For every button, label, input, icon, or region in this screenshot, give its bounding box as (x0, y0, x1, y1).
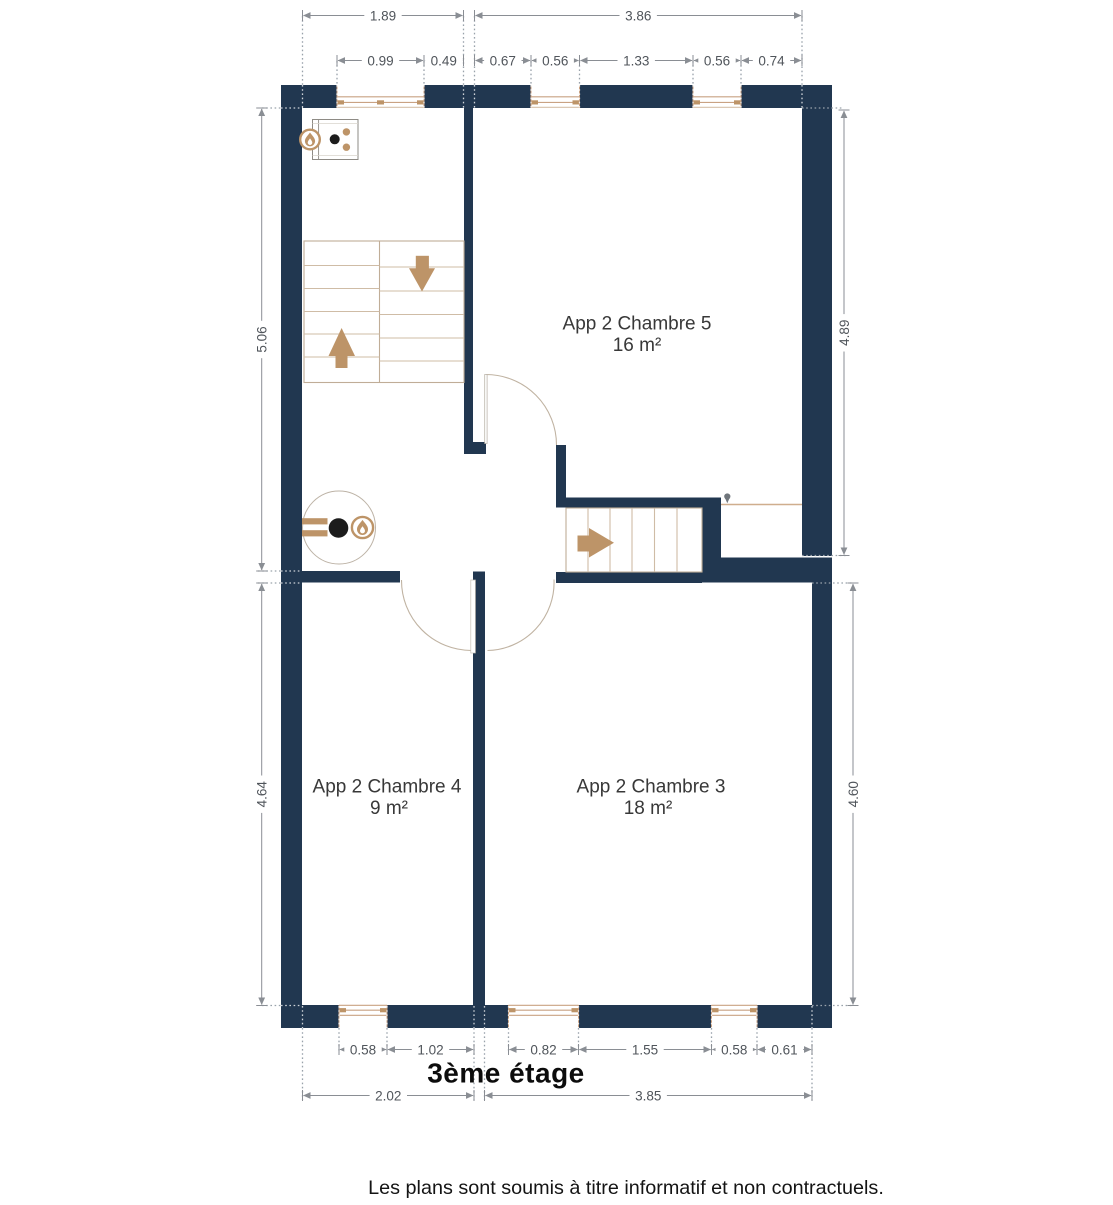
svg-text:3.85: 3.85 (635, 1088, 661, 1103)
svg-text:Les plans sont soumis à titre: Les plans sont soumis à titre informatif… (368, 1177, 884, 1199)
svg-text:0.58: 0.58 (721, 1042, 747, 1057)
svg-text:3.86: 3.86 (625, 8, 651, 23)
svg-text:0.61: 0.61 (771, 1042, 797, 1057)
svg-text:1.02: 1.02 (417, 1042, 443, 1057)
svg-text:0.56: 0.56 (704, 53, 730, 68)
svg-text:1.33: 1.33 (623, 53, 649, 68)
svg-text:1.89: 1.89 (370, 8, 396, 23)
svg-text:5.06: 5.06 (255, 326, 270, 352)
svg-text:2.02: 2.02 (375, 1088, 401, 1103)
svg-text:4.64: 4.64 (255, 781, 270, 808)
svg-text:0.49: 0.49 (431, 53, 457, 68)
svg-text:App 2 Chambre 3: App 2 Chambre 3 (577, 777, 726, 798)
svg-text:4.60: 4.60 (846, 781, 861, 807)
svg-text:0.56: 0.56 (542, 53, 568, 68)
svg-text:0.58: 0.58 (350, 1042, 376, 1057)
svg-text:App 2 Chambre 4: App 2 Chambre 4 (313, 777, 462, 798)
svg-text:0.82: 0.82 (530, 1042, 556, 1057)
svg-text:0.99: 0.99 (367, 53, 393, 68)
svg-text:1.55: 1.55 (632, 1042, 658, 1057)
svg-text:16 m²: 16 m² (613, 335, 662, 356)
svg-text:0.74: 0.74 (758, 53, 785, 68)
svg-text:9 m²: 9 m² (370, 798, 408, 819)
svg-text:18 m²: 18 m² (624, 798, 673, 819)
svg-text:App 2 Chambre 5: App 2 Chambre 5 (563, 314, 712, 335)
svg-text:3ème étage: 3ème étage (427, 1058, 585, 1089)
svg-text:4.89: 4.89 (837, 320, 852, 346)
svg-text:0.67: 0.67 (490, 53, 516, 68)
